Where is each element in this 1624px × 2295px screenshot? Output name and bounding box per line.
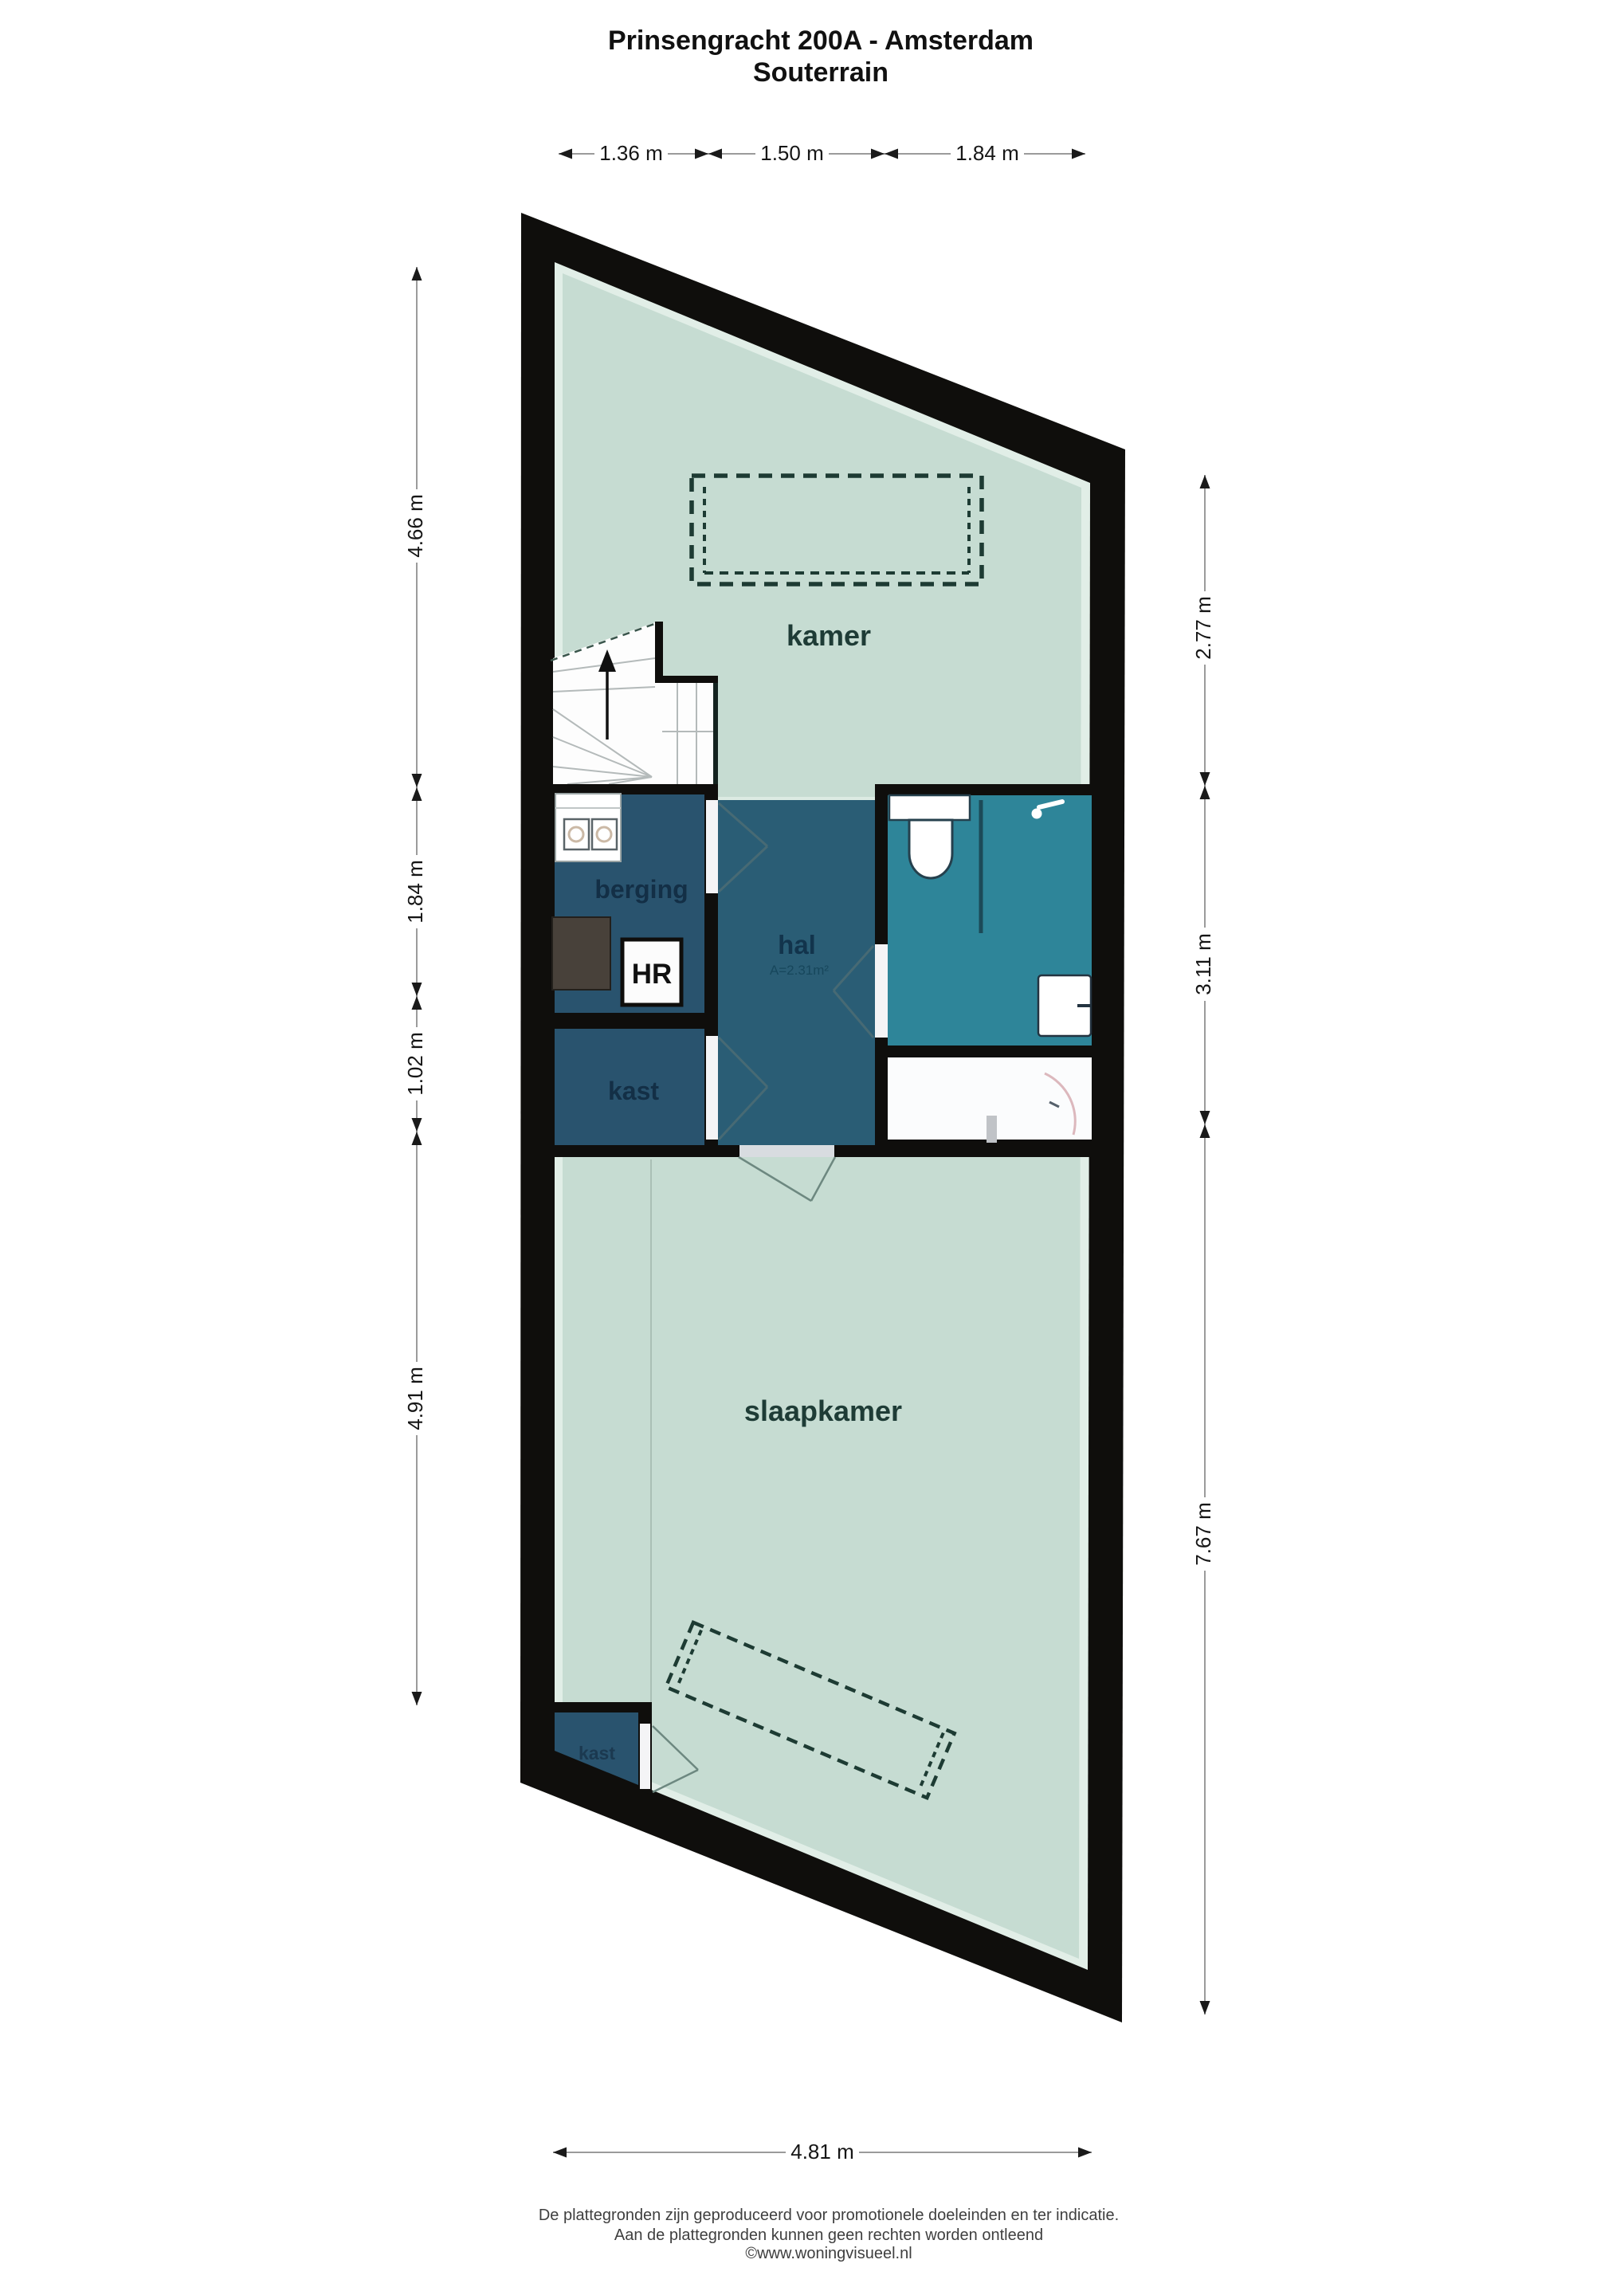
- svg-text:1.84 m: 1.84 m: [955, 141, 1019, 165]
- svg-text:7.67 m: 7.67 m: [1191, 1502, 1215, 1566]
- svg-text:hal: hal: [778, 930, 816, 959]
- svg-text:HR: HR: [632, 959, 673, 990]
- svg-text:kamer: kamer: [787, 619, 871, 652]
- svg-text:3.11 m: 3.11 m: [1191, 933, 1215, 995]
- svg-text:kast: kast: [608, 1077, 659, 1105]
- svg-text:Souterrain: Souterrain: [753, 57, 888, 88]
- svg-text:4.81 m: 4.81 m: [790, 2140, 854, 2164]
- svg-text:slaapkamer: slaapkamer: [744, 1395, 902, 1427]
- svg-text:De plattegronden zijn geproduc: De plattegronden zijn geproduceerd voor …: [539, 2207, 1119, 2224]
- svg-text:4.66 m: 4.66 m: [403, 494, 427, 558]
- svg-text:2.77 m: 2.77 m: [1191, 596, 1215, 660]
- svg-text:©www.woningvisueel.nl: ©www.woningvisueel.nl: [745, 2245, 912, 2262]
- svg-text:A=2.31m²: A=2.31m²: [770, 963, 830, 978]
- svg-text:1.02 m: 1.02 m: [403, 1032, 427, 1096]
- svg-text:1.36 m: 1.36 m: [599, 141, 663, 165]
- svg-text:1.50 m: 1.50 m: [760, 141, 824, 165]
- svg-text:Prinsengracht 200A - Amsterdam: Prinsengracht 200A - Amsterdam: [608, 25, 1034, 56]
- svg-text:kast: kast: [579, 1743, 615, 1763]
- svg-text:Aan de plattegronden kunnen ge: Aan de plattegronden kunnen geen rechten…: [614, 2226, 1043, 2244]
- svg-text:4.91 m: 4.91 m: [403, 1367, 427, 1430]
- svg-text:1.84 m: 1.84 m: [403, 860, 427, 924]
- svg-text:berging: berging: [594, 875, 688, 904]
